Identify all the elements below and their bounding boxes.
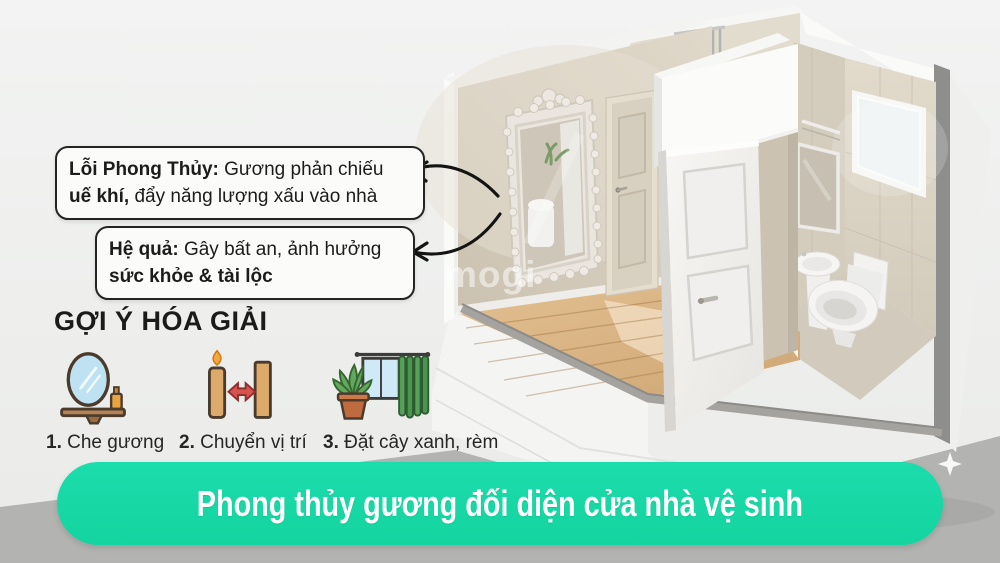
callout-line: Hệ quả: Gây bất an, ảnh hưởng [109, 236, 401, 263]
callout-line: sức khỏe & tài lộc [109, 263, 401, 290]
mirror-shelf-icon [48, 350, 140, 430]
candle-move-icon [192, 346, 284, 426]
remedies-title: GỢI Ý HÓA GIẢI [54, 306, 268, 337]
remedy-label-plant-curtain: 3. Đặt cây xanh, rèm [323, 432, 498, 454]
remedy-label-move-position: 2. Chuyển vị trí [179, 432, 307, 454]
remedy-label-cover-mirror: 1. Che gương [46, 432, 164, 454]
open-door [658, 140, 764, 432]
bathroom-interior [794, 42, 948, 400]
banner-title: Phong thủy gương đối diện cửa nhà vệ sin… [197, 483, 803, 525]
callout-fengshui-error: Lỗi Phong Thủy: Gương phản chiếu uế khí,… [55, 146, 425, 220]
callout-consequence: Hệ quả: Gây bất an, ảnh hưởng sức khỏe &… [95, 226, 415, 300]
callout-line: uế khí, đẩy năng lượng xấu vào nhà [69, 183, 411, 210]
title-banner: Phong thủy gương đối diện cửa nhà vệ sin… [57, 462, 943, 545]
hallway-door [606, 90, 658, 296]
callout-line: Lỗi Phong Thủy: Gương phản chiếu [69, 156, 411, 183]
plant-curtain-icon [328, 344, 434, 428]
right-outer-wall-face [948, 72, 992, 452]
ornate-mirror [503, 89, 602, 288]
bathroom-mirror [798, 144, 838, 232]
